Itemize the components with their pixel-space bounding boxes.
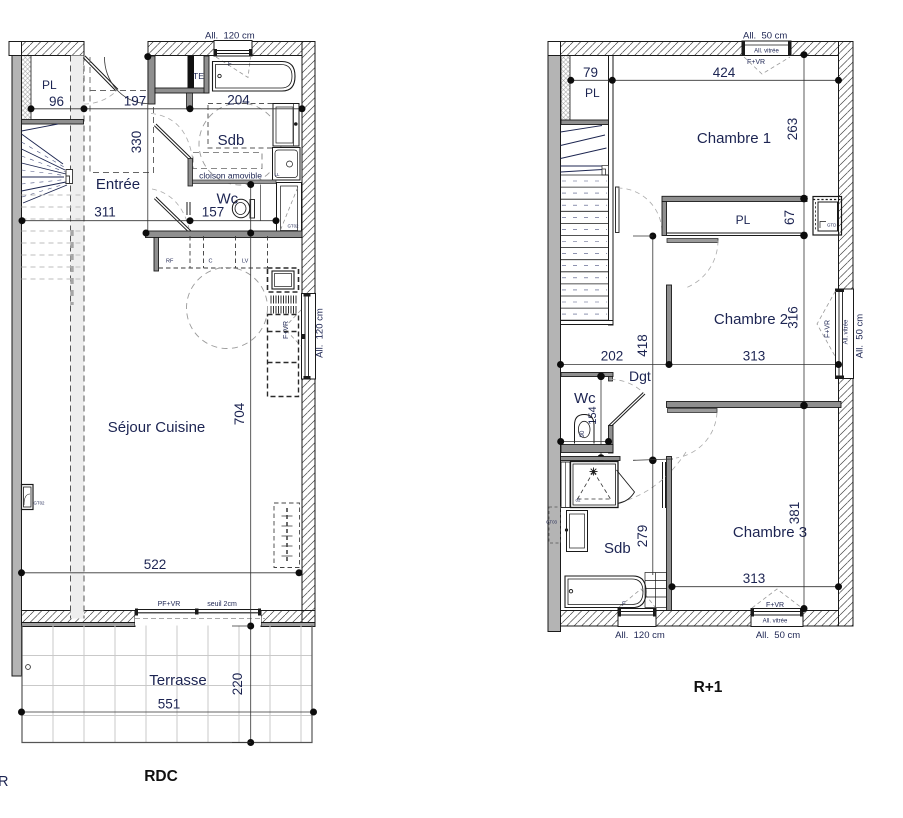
svg-text:418: 418 — [635, 334, 650, 357]
svg-text:GTD: GTD — [827, 223, 836, 228]
svg-text:R+1: R+1 — [694, 679, 723, 696]
svg-text:Séjour Cuisine: Séjour Cuisine — [108, 419, 206, 436]
svg-text:313: 313 — [743, 349, 766, 364]
svg-text:Chambre 2: Chambre 2 — [714, 311, 788, 328]
svg-text:All. vitrée: All. vitrée — [754, 49, 779, 55]
svg-text:All. 50 cm: All. 50 cm — [756, 630, 800, 641]
svg-text:cloison amovible: cloison amovible — [199, 171, 262, 181]
svg-text:Wc: Wc — [574, 390, 596, 407]
svg-text:Chambre 3: Chambre 3 — [733, 524, 807, 541]
svg-text:All. 50 cm: All. 50 cm — [855, 314, 866, 358]
svg-text:79: 79 — [583, 65, 598, 80]
svg-text:seuil 2cm: seuil 2cm — [207, 601, 237, 608]
svg-text:424: 424 — [713, 65, 736, 80]
svg-text:GT03: GT03 — [546, 520, 558, 525]
svg-text:All. 120 cm: All. 120 cm — [315, 308, 326, 358]
svg-text:Sdb: Sdb — [218, 132, 245, 149]
svg-text:LV: LV — [242, 259, 249, 265]
svg-text:All. 50 cm: All. 50 cm — [743, 31, 787, 42]
svg-text:330: 330 — [129, 131, 144, 154]
svg-text:202: 202 — [601, 349, 624, 364]
svg-text:RF: RF — [166, 259, 174, 265]
svg-text:96: 96 — [49, 94, 64, 109]
svg-text:90: 90 — [580, 430, 586, 437]
svg-text:LL: LL — [275, 172, 280, 177]
svg-text:PL: PL — [42, 78, 57, 92]
svg-text:RDC: RDC — [144, 768, 178, 785]
svg-text:704: 704 — [232, 402, 247, 425]
svg-text:204: 204 — [227, 93, 250, 108]
svg-text:157: 157 — [202, 205, 225, 220]
svg-text:GT02: GT02 — [34, 501, 46, 506]
svg-text:Dgt: Dgt — [629, 368, 651, 384]
svg-text:263: 263 — [785, 118, 800, 141]
svg-text:TE: TE — [193, 71, 204, 81]
svg-text:F+VR: F+VR — [747, 59, 765, 66]
svg-text:All. vitrée: All. vitrée — [844, 319, 850, 344]
svg-text:197: 197 — [124, 94, 147, 109]
svg-text:PL: PL — [736, 213, 751, 227]
svg-text:Entrée: Entrée — [96, 176, 140, 193]
svg-text:220: 220 — [230, 673, 245, 696]
svg-text:F: F — [228, 62, 232, 68]
svg-text:313: 313 — [743, 571, 766, 586]
svg-text:551: 551 — [158, 697, 181, 712]
svg-text:d2: d2 — [576, 498, 581, 503]
svg-text:279: 279 — [635, 525, 650, 548]
svg-text:522: 522 — [144, 557, 167, 572]
svg-text:All. 120 cm: All. 120 cm — [205, 31, 255, 42]
svg-text:Sdb: Sdb — [604, 540, 631, 557]
svg-text:PF+VR: PF+VR — [158, 601, 181, 608]
svg-text:GT02: GT02 — [288, 224, 300, 229]
svg-text:All. 120 cm: All. 120 cm — [615, 630, 665, 641]
svg-text:R: R — [0, 774, 8, 790]
svg-text:C: C — [209, 259, 213, 265]
svg-text:311: 311 — [94, 205, 116, 220]
svg-text:All. vitrée: All. vitrée — [763, 619, 788, 625]
svg-text:F+VR: F+VR — [283, 321, 290, 339]
svg-text:Chambre 1: Chambre 1 — [697, 130, 771, 147]
svg-text:F+VR: F+VR — [766, 602, 784, 609]
svg-text:67: 67 — [782, 210, 797, 225]
svg-text:316: 316 — [786, 306, 801, 329]
svg-text:PL: PL — [585, 86, 600, 100]
svg-text:F+VR: F+VR — [825, 320, 832, 338]
svg-text:Terrasse: Terrasse — [149, 672, 207, 689]
svg-text:381: 381 — [787, 502, 802, 525]
